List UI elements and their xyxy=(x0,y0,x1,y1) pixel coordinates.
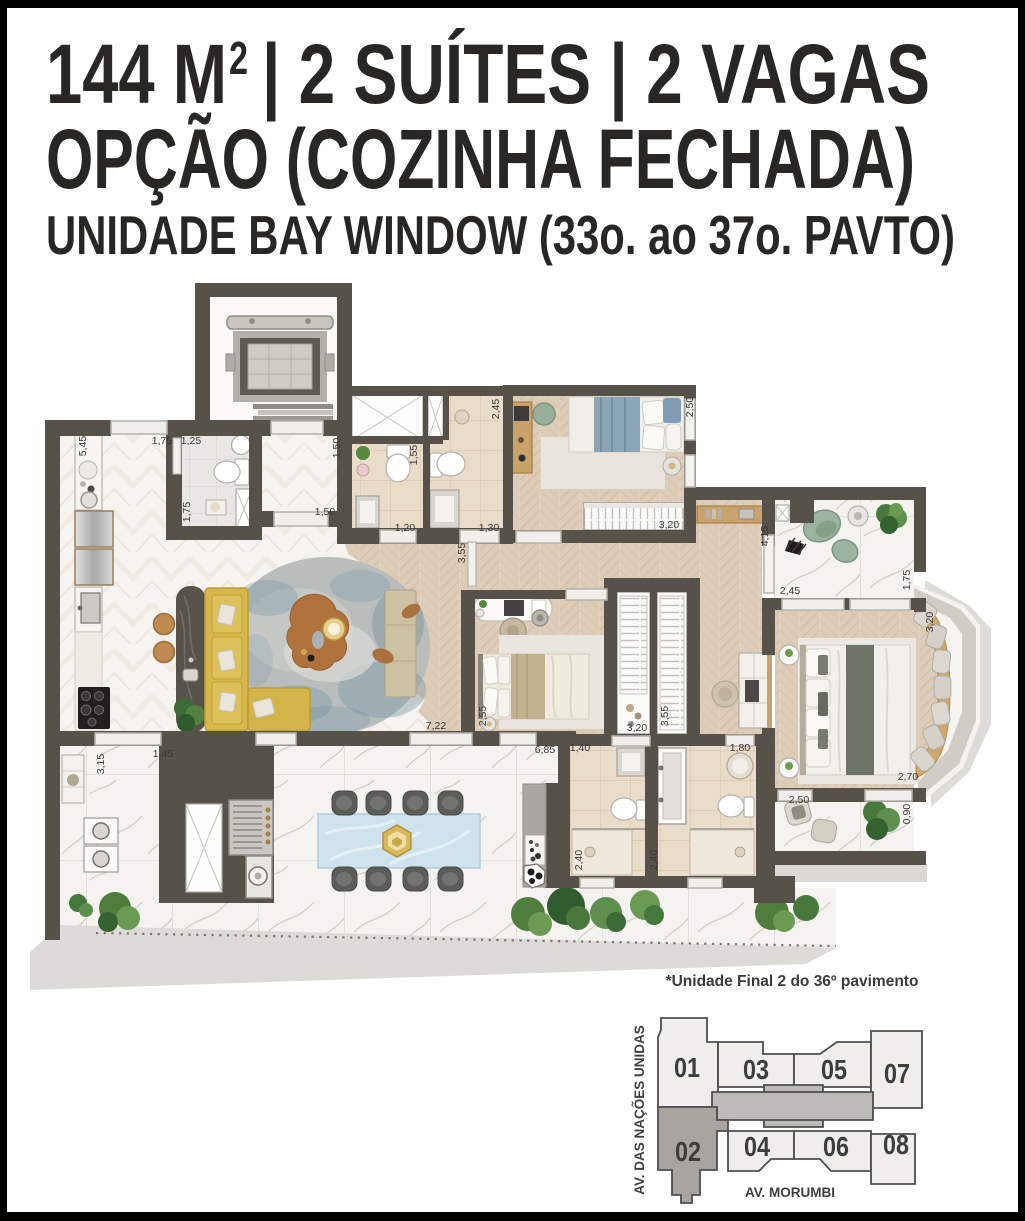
svg-text:2,45: 2,45 xyxy=(490,399,502,420)
svg-text:01: 01 xyxy=(674,1052,700,1083)
svg-text:2,45: 2,45 xyxy=(780,585,801,597)
svg-text:3,15: 3,15 xyxy=(95,754,107,775)
svg-text:2: 2 xyxy=(229,32,248,84)
svg-text:1,20: 1,20 xyxy=(395,522,416,534)
svg-text:144 M: 144 M xyxy=(46,27,227,121)
svg-text:3,55: 3,55 xyxy=(456,543,468,564)
svg-text:OPÇÃO (COZINHA FECHADA): OPÇÃO (COZINHA FECHADA) xyxy=(46,112,915,206)
svg-text:2,50: 2,50 xyxy=(789,794,810,806)
svg-text:*Unidade Final 2 do 36º pavime: *Unidade Final 2 do 36º pavimento xyxy=(666,973,919,990)
svg-text:3,55: 3,55 xyxy=(659,706,671,727)
svg-text:1,40: 1,40 xyxy=(570,742,591,754)
svg-text:1,55: 1,55 xyxy=(408,445,420,466)
svg-text:AV. DAS NAÇÕES UNIDAS: AV. DAS NAÇÕES UNIDAS xyxy=(632,1025,647,1195)
svg-text:1,75: 1,75 xyxy=(152,435,173,447)
svg-text:| 2 SUÍTES | 2 VAGAS: | 2 SUÍTES | 2 VAGAS xyxy=(262,27,930,122)
svg-text:3,20: 3,20 xyxy=(924,612,936,633)
svg-text:1,75: 1,75 xyxy=(181,502,193,523)
svg-text:07: 07 xyxy=(884,1058,910,1089)
svg-text:1,80: 1,80 xyxy=(730,742,751,754)
svg-text:1,30: 1,30 xyxy=(479,522,500,534)
svg-text:1,50: 1,50 xyxy=(315,506,336,518)
svg-text:4,15: 4,15 xyxy=(759,526,771,547)
svg-text:3,20: 3,20 xyxy=(659,519,680,531)
svg-text:02: 02 xyxy=(675,1136,701,1167)
svg-text:UNIDADE BAY WINDOW (33o. ao 37: UNIDADE BAY WINDOW (33o. ao 37o. PAVTO) xyxy=(46,204,955,266)
svg-text:2,55: 2,55 xyxy=(477,706,489,727)
svg-text:1,45: 1,45 xyxy=(153,748,174,760)
svg-text:05: 05 xyxy=(821,1054,847,1085)
svg-text:2,70: 2,70 xyxy=(898,771,919,783)
svg-text:1,25: 1,25 xyxy=(181,435,202,447)
svg-text:04: 04 xyxy=(744,1131,770,1162)
svg-text:5,45: 5,45 xyxy=(77,436,89,457)
svg-text:1,75: 1,75 xyxy=(901,570,913,591)
svg-text:0,90: 0,90 xyxy=(901,804,913,825)
svg-text:06: 06 xyxy=(823,1131,849,1162)
svg-text:6,85: 6,85 xyxy=(535,744,556,756)
svg-text:2,50: 2,50 xyxy=(684,397,696,418)
svg-text:08: 08 xyxy=(883,1129,909,1160)
svg-text:AV. MORUMBI: AV. MORUMBI xyxy=(745,1185,835,1200)
svg-text:2,40: 2,40 xyxy=(573,850,585,871)
svg-text:7,22: 7,22 xyxy=(426,720,447,732)
svg-text:3,20: 3,20 xyxy=(627,722,648,734)
svg-text:2,40: 2,40 xyxy=(648,850,660,871)
svg-text:03: 03 xyxy=(743,1054,769,1085)
svg-text:1,50: 1,50 xyxy=(331,438,343,459)
